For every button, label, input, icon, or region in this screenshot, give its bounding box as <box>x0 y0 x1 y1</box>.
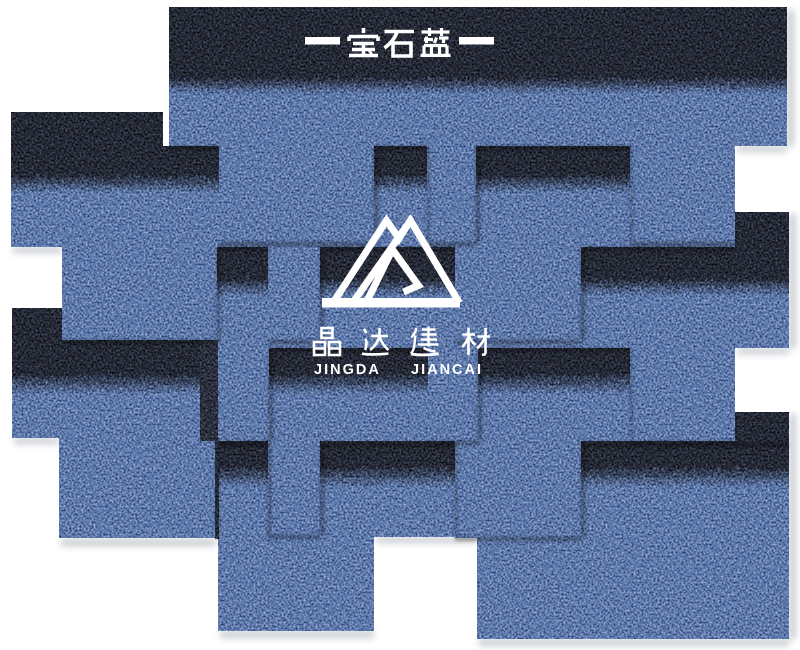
svg-text:JIANCAI: JIANCAI <box>411 362 483 378</box>
svg-text:JINGDA: JINGDA <box>314 362 381 378</box>
